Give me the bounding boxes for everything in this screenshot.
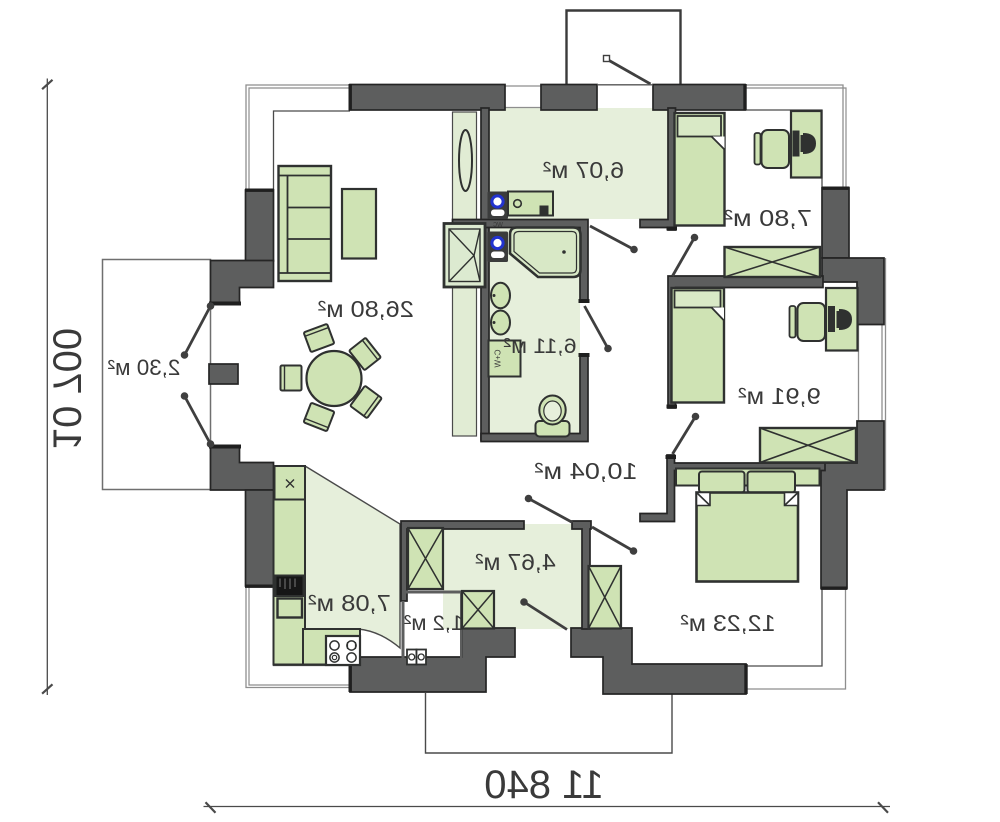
svg-text:6,07 м²: 6,07 м² — [543, 158, 624, 184]
svg-text:10,04 м²: 10,04 м² — [534, 459, 637, 485]
svg-text:6,11 м²: 6,11 м² — [503, 334, 576, 358]
svg-text:11 840: 11 840 — [484, 763, 603, 807]
svg-text:7,80 м²: 7,80 м² — [724, 206, 812, 232]
svg-text:C+W: C+W — [494, 350, 503, 368]
svg-text:4,67 м²: 4,67 м² — [475, 550, 556, 576]
svg-text:7,08 м²: 7,08 м² — [308, 591, 391, 617]
svg-text:wc: wc — [493, 220, 504, 229]
svg-text:12,23 м²: 12,23 м² — [680, 611, 775, 637]
svg-text:9,91 м²: 9,91 м² — [738, 384, 821, 410]
svg-text:2,30 м²: 2,30 м² — [108, 355, 181, 380]
svg-text:26,80 м²: 26,80 м² — [318, 297, 414, 323]
svg-text:1,2 м²: 1,2 м² — [404, 611, 463, 634]
svg-text:10 700: 10 700 — [44, 328, 88, 450]
